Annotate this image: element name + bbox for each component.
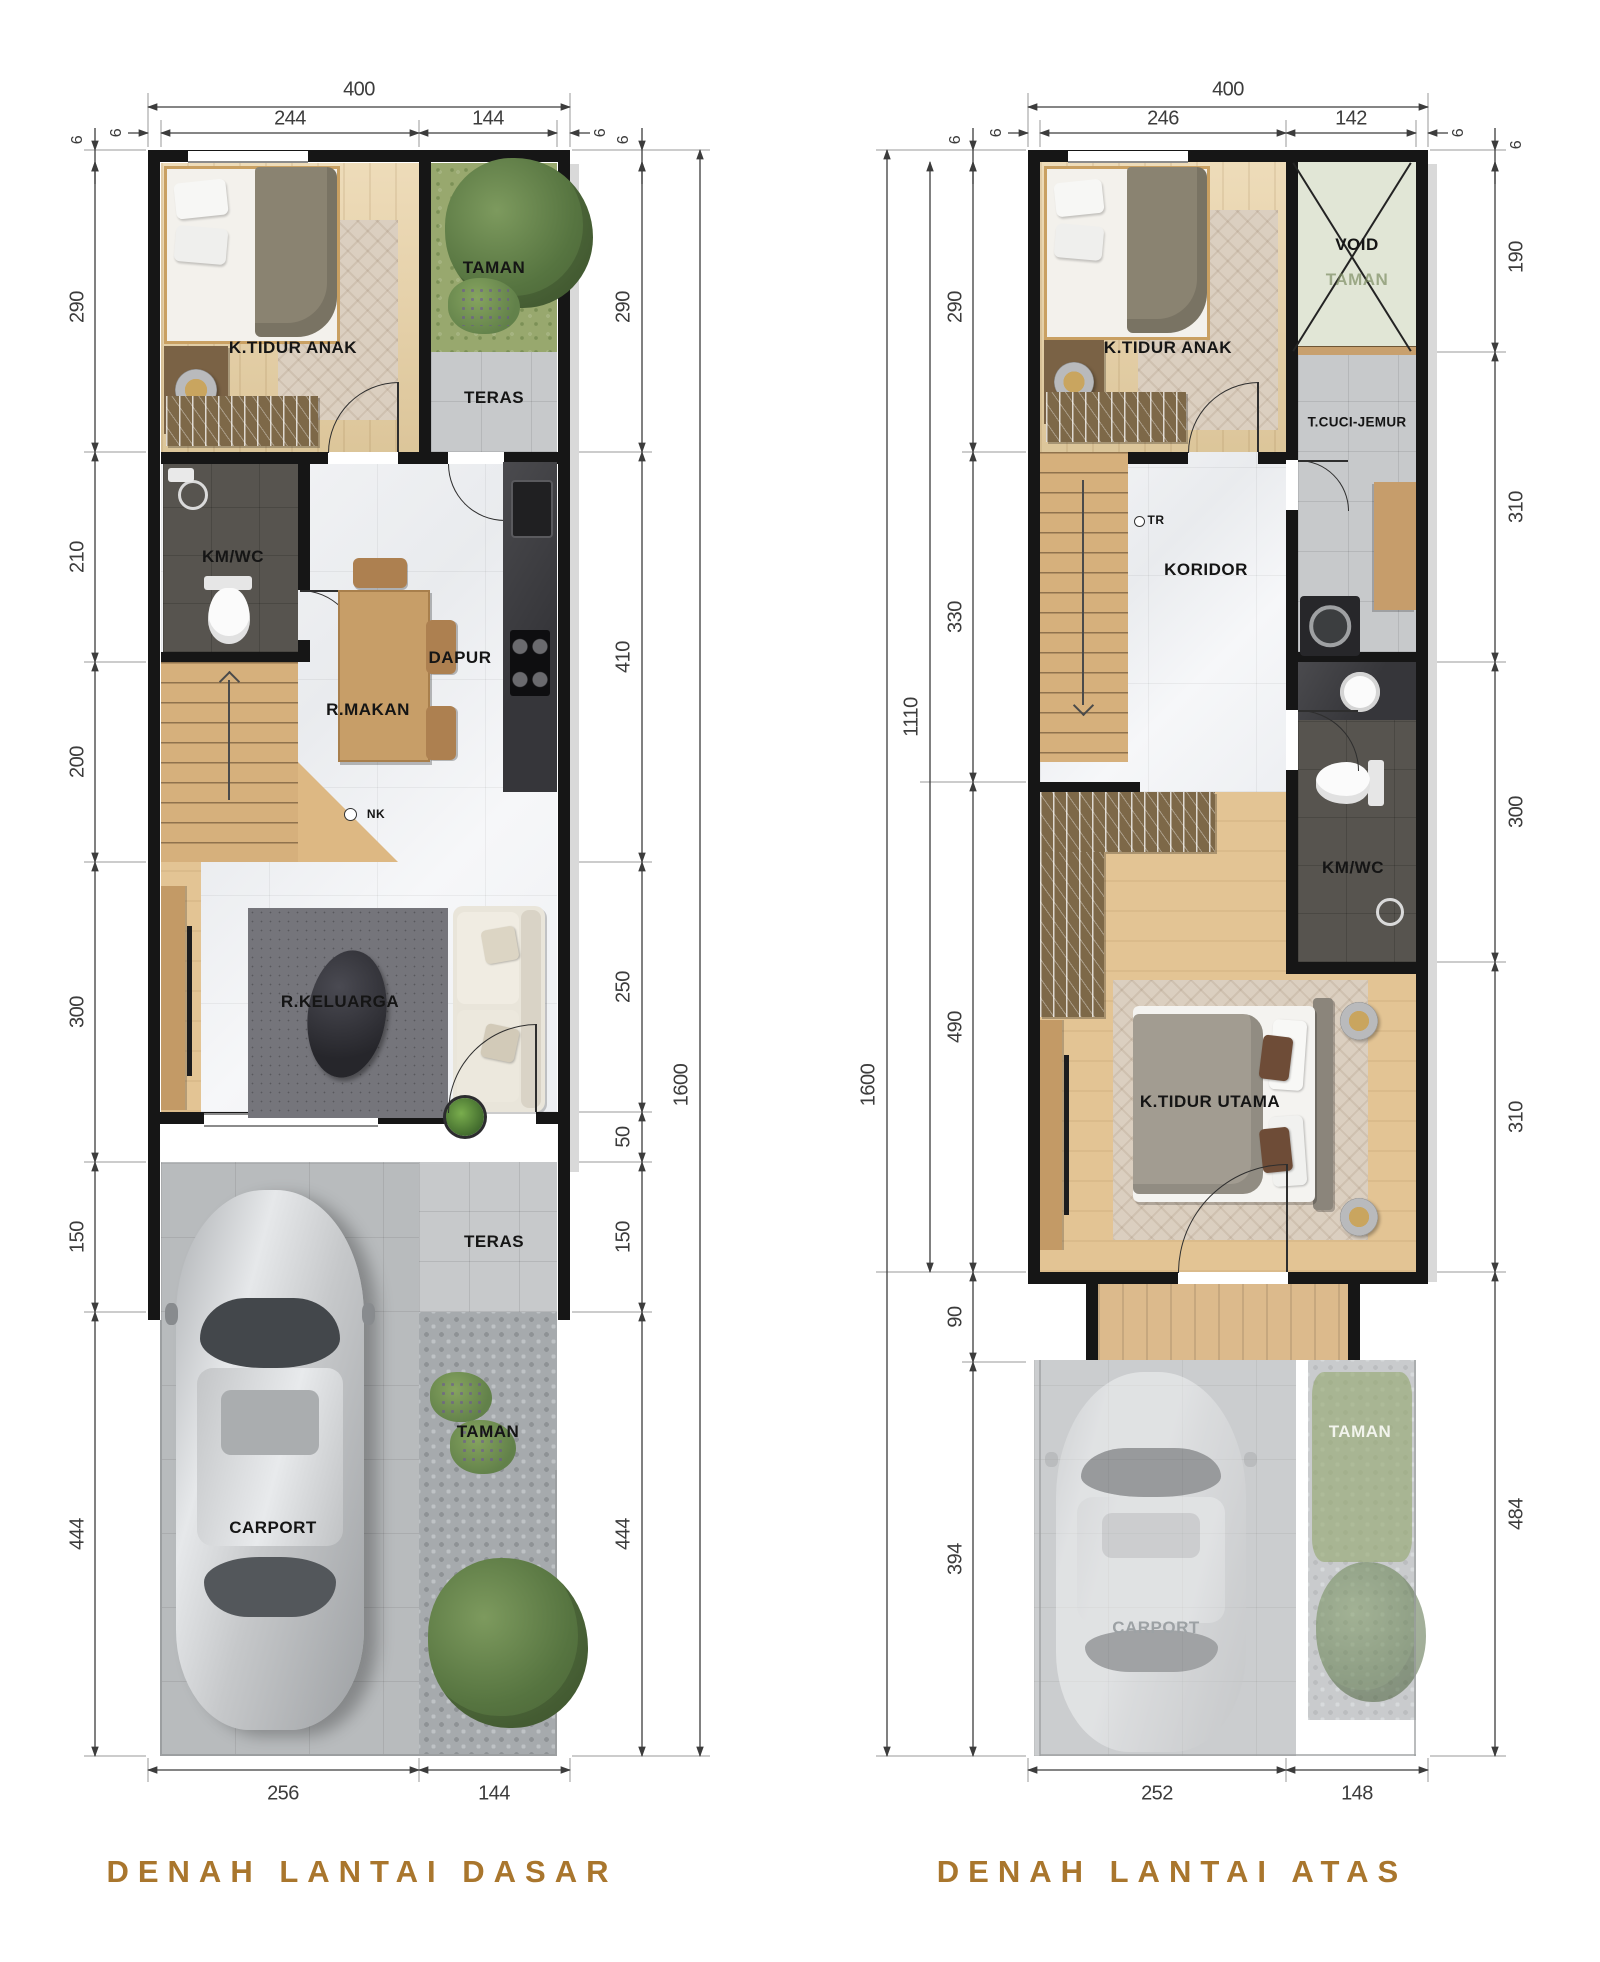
room-label-kitchen: DAPUR <box>429 648 492 668</box>
upper-floor-plan: K.TIDUR ANAK VOID TAMAN T.CUCI-JEMUR KOR… <box>1028 150 1428 1756</box>
nk-marker <box>344 808 357 821</box>
wall <box>1028 150 1040 1272</box>
floor-plan-poster: K.TIDUR ANAK TAMAN TERAS KM/WC R.MAKAN D… <box>0 0 1600 1962</box>
chair <box>426 706 456 760</box>
wardrobe <box>1040 852 1104 1017</box>
dim-label: 6 <box>1450 129 1468 137</box>
bed-single <box>1044 166 1210 340</box>
mirror <box>362 1303 375 1325</box>
windshield <box>200 1298 339 1368</box>
blanket <box>1127 167 1207 333</box>
wall <box>1028 1272 1178 1284</box>
dim-label: 148 <box>1341 1783 1373 1806</box>
tv <box>187 926 192 1076</box>
wall <box>558 1124 570 1320</box>
shower-icon <box>1376 898 1404 926</box>
dim-label: 300 <box>1506 796 1529 828</box>
wall <box>1286 770 1298 962</box>
dim-label: 444 <box>613 1518 636 1550</box>
wall <box>148 150 160 1162</box>
dim-label: 6 <box>108 129 126 137</box>
room-label-garden-ghost: TAMAN <box>1329 1422 1392 1442</box>
dim-label: 246 <box>1147 108 1179 131</box>
laundry-shelf <box>1374 482 1416 610</box>
dim-label: 444 <box>67 1518 90 1550</box>
mirror <box>1045 1452 1058 1467</box>
dim-label: 6 <box>947 136 965 144</box>
car <box>176 1190 364 1730</box>
room-label-carport-ghost: CARPORT <box>1112 1618 1200 1638</box>
stair-arrow-line <box>228 680 230 800</box>
pillow <box>1053 179 1104 218</box>
wall <box>1040 782 1140 792</box>
lamp <box>1340 1198 1378 1236</box>
windshield <box>1081 1448 1222 1497</box>
wall <box>161 652 310 662</box>
lamp <box>1340 1002 1378 1040</box>
room-label-corridor: KORIDOR <box>1164 560 1248 580</box>
dim-label: 210 <box>67 541 90 573</box>
room-label-dining: R.MAKAN <box>326 700 410 720</box>
washing-machine <box>1300 596 1360 656</box>
building-shadow <box>570 164 579 1172</box>
dim-label: 400 <box>1212 79 1244 102</box>
room-label-bathroom: KM/WC <box>202 547 264 567</box>
wall <box>1348 1272 1360 1360</box>
dim-label: 290 <box>67 291 90 323</box>
wall <box>1286 510 1298 710</box>
building-shadow <box>1428 164 1437 1282</box>
sunroof <box>221 1390 319 1455</box>
room-label-carport: CARPORT <box>229 1518 317 1538</box>
blanket <box>255 167 337 337</box>
porch-deck <box>1098 1284 1348 1360</box>
hedge-ghost <box>1312 1372 1412 1562</box>
dim-label: 150 <box>67 1221 90 1253</box>
tv-console <box>161 886 185 1110</box>
wardrobe <box>1046 392 1186 442</box>
kitchen-sink <box>511 480 553 538</box>
room-label-terrace-front: TERAS <box>464 1232 524 1252</box>
dim-label: 50 <box>613 1126 636 1147</box>
wall <box>431 452 448 464</box>
wall <box>536 1112 570 1124</box>
dim-label: 310 <box>1506 491 1529 523</box>
dim-label: 144 <box>472 108 504 131</box>
mirror <box>165 1303 178 1325</box>
dim-label: 290 <box>613 291 636 323</box>
fence-bottom <box>1040 1754 1416 1756</box>
chair <box>353 558 407 588</box>
dining-table <box>338 590 430 762</box>
wall <box>558 150 570 1162</box>
wardrobe <box>1040 792 1215 852</box>
pillow <box>480 925 519 964</box>
car-ghost <box>1056 1372 1246 1752</box>
room-label-void-garden: TAMAN <box>1326 270 1389 290</box>
wall <box>298 464 310 590</box>
room-label-garden-top: TAMAN <box>463 258 526 278</box>
dim-label: 490 <box>945 1011 968 1043</box>
window-bedroom <box>188 151 308 163</box>
dim-label: 300 <box>67 996 90 1028</box>
mirror <box>1244 1452 1257 1467</box>
window-bedroom <box>1068 151 1188 163</box>
rear-glass <box>204 1557 336 1616</box>
fence-left <box>160 1320 162 1756</box>
tr-marker <box>1134 516 1145 527</box>
stair-arrow-line <box>1082 480 1084 705</box>
dim-label: 1110 <box>901 697 924 737</box>
sink <box>168 468 194 482</box>
dim-label: 394 <box>945 1543 968 1575</box>
fence-right <box>1414 1360 1416 1756</box>
sunroof <box>1102 1513 1201 1559</box>
ground-floor-plan: K.TIDUR ANAK TAMAN TERAS KM/WC R.MAKAN D… <box>148 150 570 1756</box>
dim-label: 256 <box>267 1783 299 1806</box>
wall <box>419 162 431 464</box>
dim-label: 142 <box>1335 108 1367 131</box>
room-label-bedroom: K.TIDUR ANAK <box>1104 338 1232 358</box>
room-label-living: R.KELUARGA <box>281 992 399 1012</box>
wall <box>161 452 328 464</box>
upper-floor-title: DENAH LANTAI ATAS <box>937 1854 1407 1890</box>
dim-label: 190 <box>1506 241 1529 273</box>
shower-icon <box>178 480 208 510</box>
dim-label: 90 <box>945 1306 968 1327</box>
dim-label: 6 <box>592 129 610 137</box>
dim-label: 1600 <box>858 1064 881 1107</box>
dim-label: 144 <box>478 1783 510 1806</box>
bush <box>448 278 520 334</box>
room-label-laundry: T.CUCI-JEMUR <box>1308 415 1407 430</box>
wall <box>398 452 431 464</box>
dim-label: 150 <box>613 1221 636 1253</box>
pillow <box>173 178 228 219</box>
void-sill <box>1298 346 1416 355</box>
dim-label: 484 <box>1506 1498 1529 1530</box>
pillow <box>1054 223 1105 261</box>
stove <box>510 630 550 696</box>
toilet-tank <box>1368 760 1384 806</box>
tv-console <box>1040 1020 1062 1250</box>
dim-label: 250 <box>613 971 636 1003</box>
dim-label: 6 <box>1508 141 1526 149</box>
dim-label: 310 <box>1506 1101 1529 1133</box>
dim-label: 400 <box>343 79 375 102</box>
room-label-void: VOID <box>1335 235 1379 255</box>
wall <box>148 1124 160 1320</box>
dim-label: 330 <box>945 601 968 633</box>
tv <box>1064 1055 1069 1215</box>
wall <box>1258 452 1286 464</box>
dim-label: 200 <box>67 746 90 778</box>
dim-label: 410 <box>613 641 636 673</box>
bed-single <box>164 166 340 344</box>
bush <box>430 1372 492 1422</box>
dim-label: 6 <box>988 129 1006 137</box>
room-label-bedroom: K.TIDUR ANAK <box>229 338 357 358</box>
room-label-garden-front: TAMAN <box>457 1422 520 1442</box>
dim-label: 6 <box>69 136 87 144</box>
tr-label: TR <box>1148 513 1165 527</box>
pillow <box>174 225 229 265</box>
room-label-terrace-top: TERAS <box>464 388 524 408</box>
headboard <box>1313 998 1333 1210</box>
wall <box>1286 962 1428 974</box>
wardrobe <box>166 396 318 446</box>
wall <box>1086 1272 1098 1360</box>
wall <box>1286 162 1298 460</box>
dim-label: 6 <box>615 136 633 144</box>
dim-label: 290 <box>945 291 968 323</box>
void-haze <box>1298 162 1416 352</box>
sink <box>1340 672 1380 712</box>
tree <box>428 1558 588 1728</box>
ground-floor-title: DENAH LANTAI DASAR <box>106 1854 617 1890</box>
nk-label: NK <box>367 807 385 821</box>
pillow <box>1258 1034 1293 1081</box>
dim-label: 244 <box>274 108 306 131</box>
toilet <box>208 588 250 644</box>
dim-label: 1600 <box>671 1064 694 1107</box>
room-label-bathroom: KM/WC <box>1322 858 1384 878</box>
fence-bottom <box>161 1754 557 1756</box>
dim-label: 252 <box>1141 1783 1173 1806</box>
fence-left <box>1039 1360 1041 1756</box>
wall <box>1416 150 1428 1272</box>
room-label-master: K.TIDUR UTAMA <box>1140 1092 1280 1112</box>
